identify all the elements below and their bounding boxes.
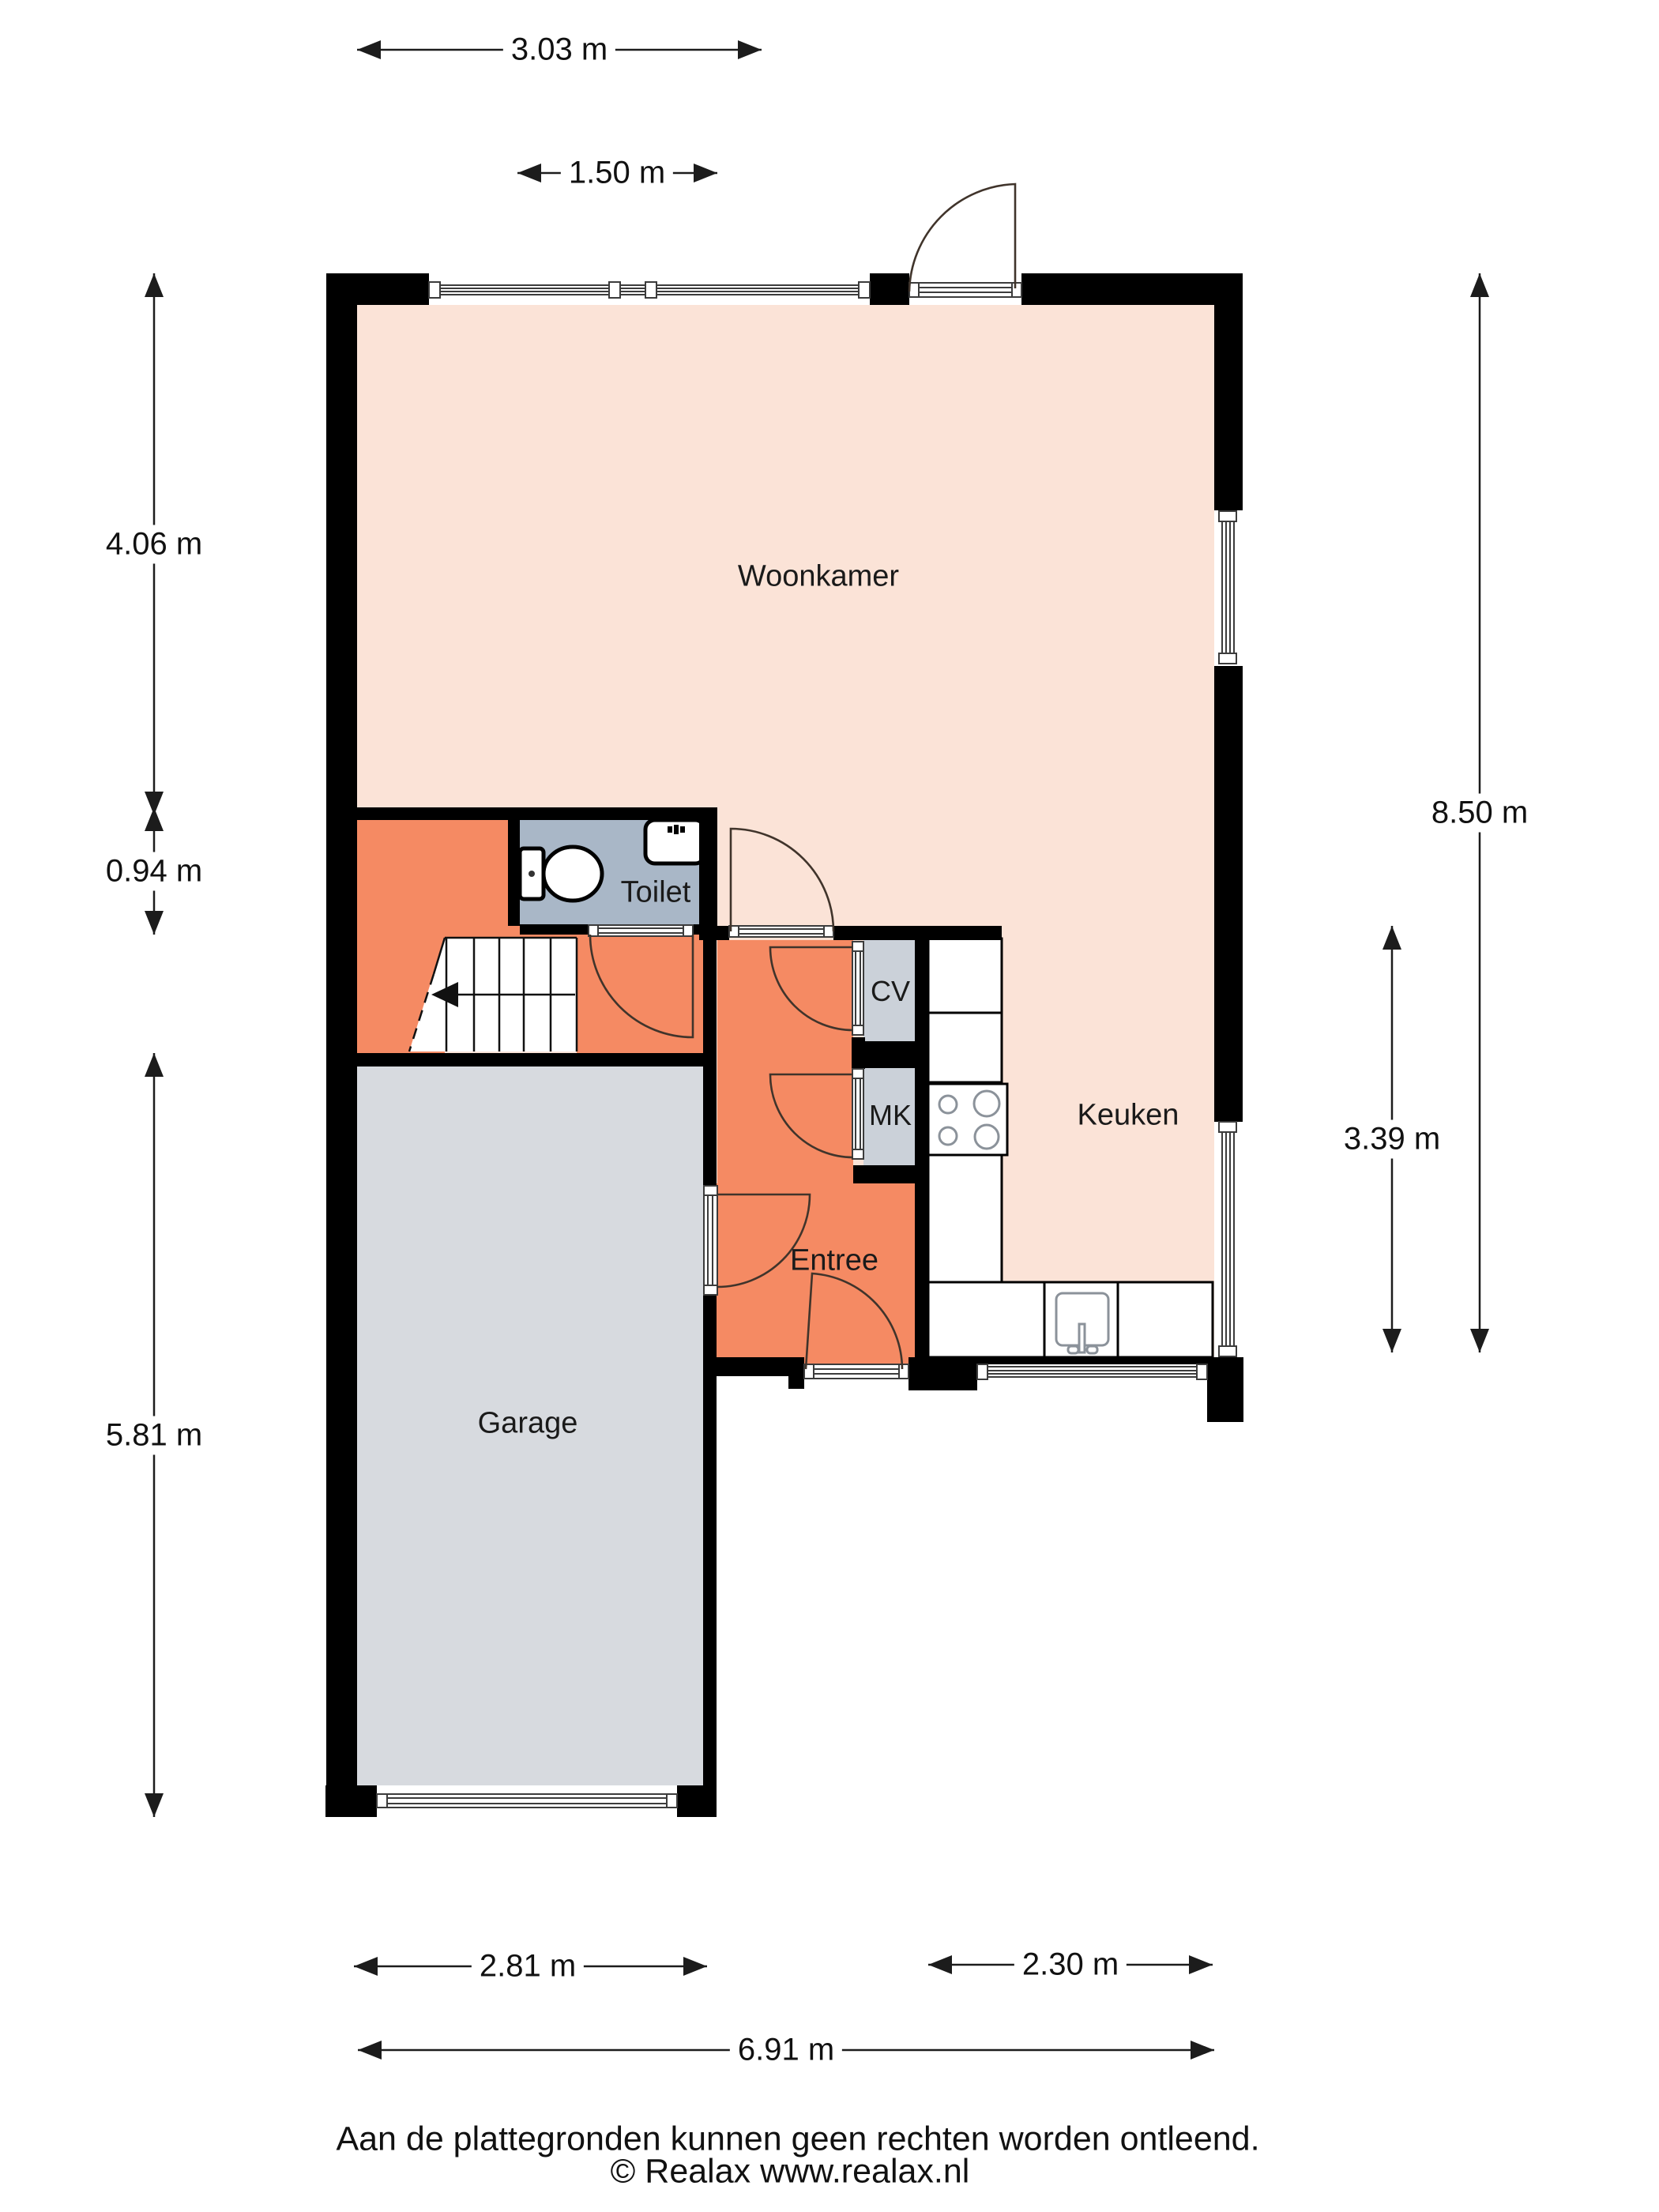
dimension-bottom-total-width: 6.91 m [730,2031,842,2070]
window-right-kitchen [1214,1122,1243,1356]
mk-door-opening [852,1069,863,1159]
dimension-top-width: 3.03 m [503,31,615,70]
garage-entree-door-opening [704,1186,717,1295]
hall-closet-front-floor [717,940,853,1183]
cooktop-burner-icon [939,1096,957,1113]
dimension-left-hall-height: 0.94 m [98,852,210,891]
top-entrance-door-swing [909,184,1015,292]
floorplan-drawing [0,0,1659,2212]
window-kitchen-south [977,1364,1207,1379]
toilet-door-opening [589,925,693,936]
room-label-entree: Entree [790,1244,878,1278]
room-label-woonkamer: Woonkamer [738,560,899,594]
room-label-cv: CV [871,975,910,1008]
dimension-bottom-kitchen-width: 2.30 m [1014,1946,1127,1984]
hand-basin-icon [645,820,705,863]
cooktop-burner-icon [939,1127,957,1145]
room-label-toilet: Toilet [621,876,691,910]
room-label-mk: MK [869,1099,912,1132]
footer-copyright: © Realax www.realax.nl [611,2153,970,2191]
door-opening-top [909,283,1021,297]
dimension-right-total-height: 8.50 m [1424,794,1536,833]
kitchen-sink-icon [1056,1293,1108,1353]
dimension-top-window-width: 1.50 m [561,154,673,193]
wc-icon [520,847,602,901]
living-door-opening [729,926,833,937]
room-label-garage: Garage [478,1407,578,1441]
dimension-bottom-garage-width: 2.81 m [472,1947,584,1986]
floorplan: Woonkamer Toilet CV MK Keuken Entree Gar… [0,0,1659,2212]
hall-corridor-floor [577,935,703,1053]
window-top [429,273,870,305]
dimension-left-living-height: 4.06 m [98,525,210,564]
front-door-opening [804,1364,908,1379]
dimension-left-garage-height: 5.81 m [98,1416,210,1455]
room-label-keuken: Keuken [1078,1099,1179,1133]
cooktop-burner-icon [974,1091,999,1116]
cv-door-opening [852,942,863,1035]
garage-door [377,1794,677,1808]
hall-strip-floor [357,820,508,926]
dimension-right-kitchen-height: 3.39 m [1336,1120,1448,1159]
cooktop-burner-icon [975,1125,999,1149]
window-right-living [1214,511,1243,664]
